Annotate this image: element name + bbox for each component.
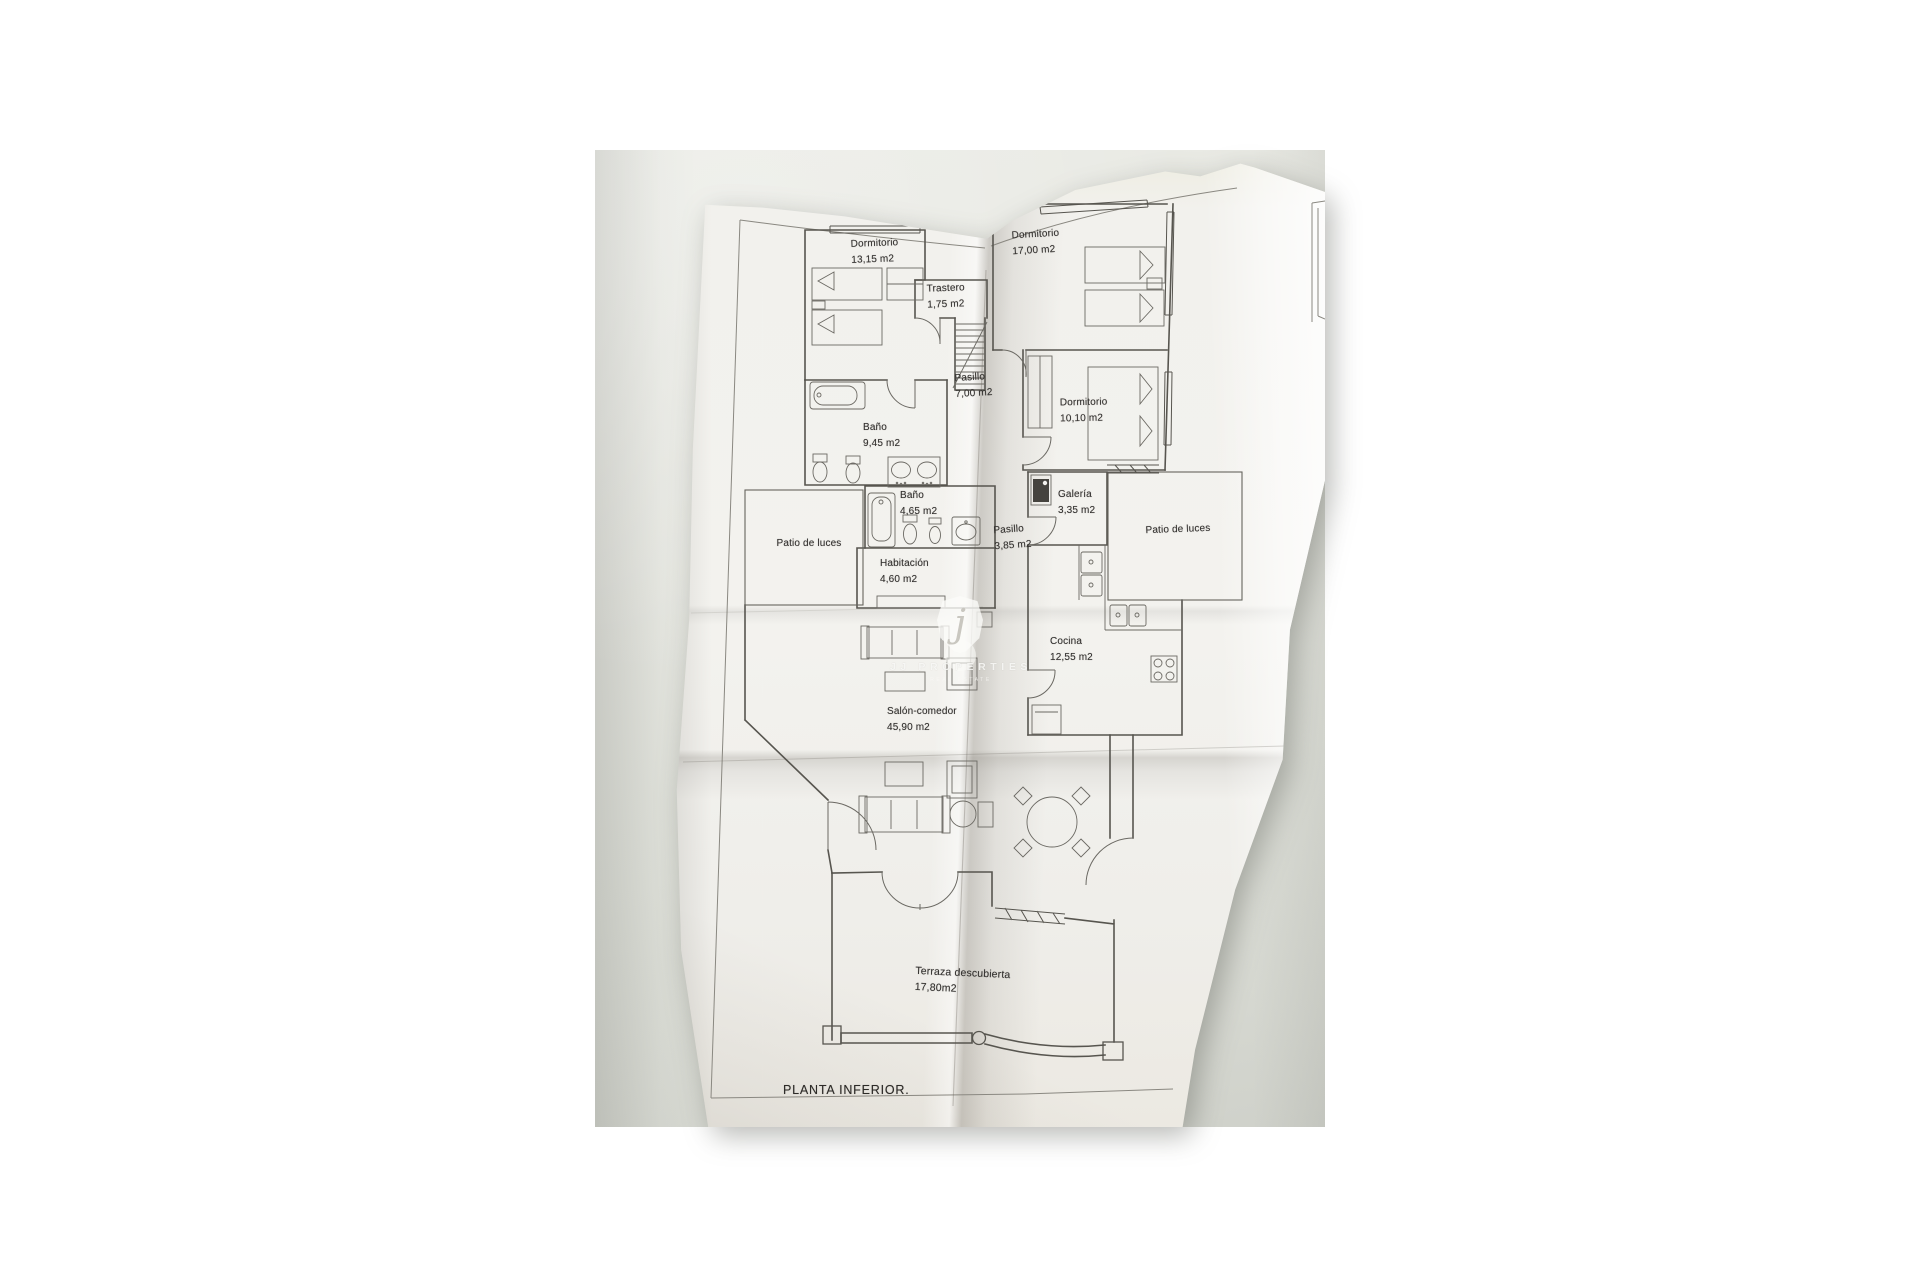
room-label-pasillo-2: Pasillo3,85 m2 [993, 521, 1032, 556]
drawing-border [711, 188, 1325, 1098]
room-label-dormitorio-1: Dormitorio13,15 m2 [850, 235, 899, 269]
room-label-salon-comedor: Salón-comedor45,90 m2 [887, 704, 957, 736]
room-label-cocina: Cocina12,55 m2 [1050, 634, 1093, 666]
room-label-bano-2: Baño4,65 m2 [900, 488, 937, 520]
room-label-patio-izquierdo: Patio de luces [777, 536, 842, 552]
room-label-terraza: Terraza descubierta17,80m2 [914, 963, 1010, 999]
room-label-patio-derecho: Patio de luces [1145, 521, 1210, 539]
room-label-bano-1: Baño9,45 m2 [863, 420, 900, 452]
room-label-galeria: Galería3,35 m2 [1058, 487, 1095, 519]
plan-paper-sheet: Dormitorio13,15 m2 Dormitorio17,00 m2 Tr… [595, 150, 1325, 1127]
floorplan-drawing: Dormitorio13,15 m2 Dormitorio17,00 m2 Tr… [595, 150, 1325, 1127]
room-label-dormitorio-3: Dormitorio10,10 m2 [1060, 395, 1108, 428]
bathroom-fixtures-icon [810, 382, 980, 547]
plan-title: PLANTA INFERIOR. [783, 1083, 909, 1097]
page-background: Dormitorio13,15 m2 Dormitorio17,00 m2 Tr… [0, 0, 1920, 1280]
room-label-habitacion: Habitación4,60 m2 [880, 556, 929, 588]
room-label-trastero: Trastero1,75 m2 [926, 280, 965, 313]
room-label-pasillo-1: Pasillo7,00 m2 [954, 369, 993, 403]
floorplan-photo: Dormitorio13,15 m2 Dormitorio17,00 m2 Tr… [595, 150, 1325, 1127]
plan-paper-wrap: Dormitorio13,15 m2 Dormitorio17,00 m2 Tr… [595, 150, 1325, 1127]
water-heater-icon [1031, 475, 1051, 505]
room-label-dormitorio-2: Dormitorio17,00 m2 [1011, 226, 1060, 260]
